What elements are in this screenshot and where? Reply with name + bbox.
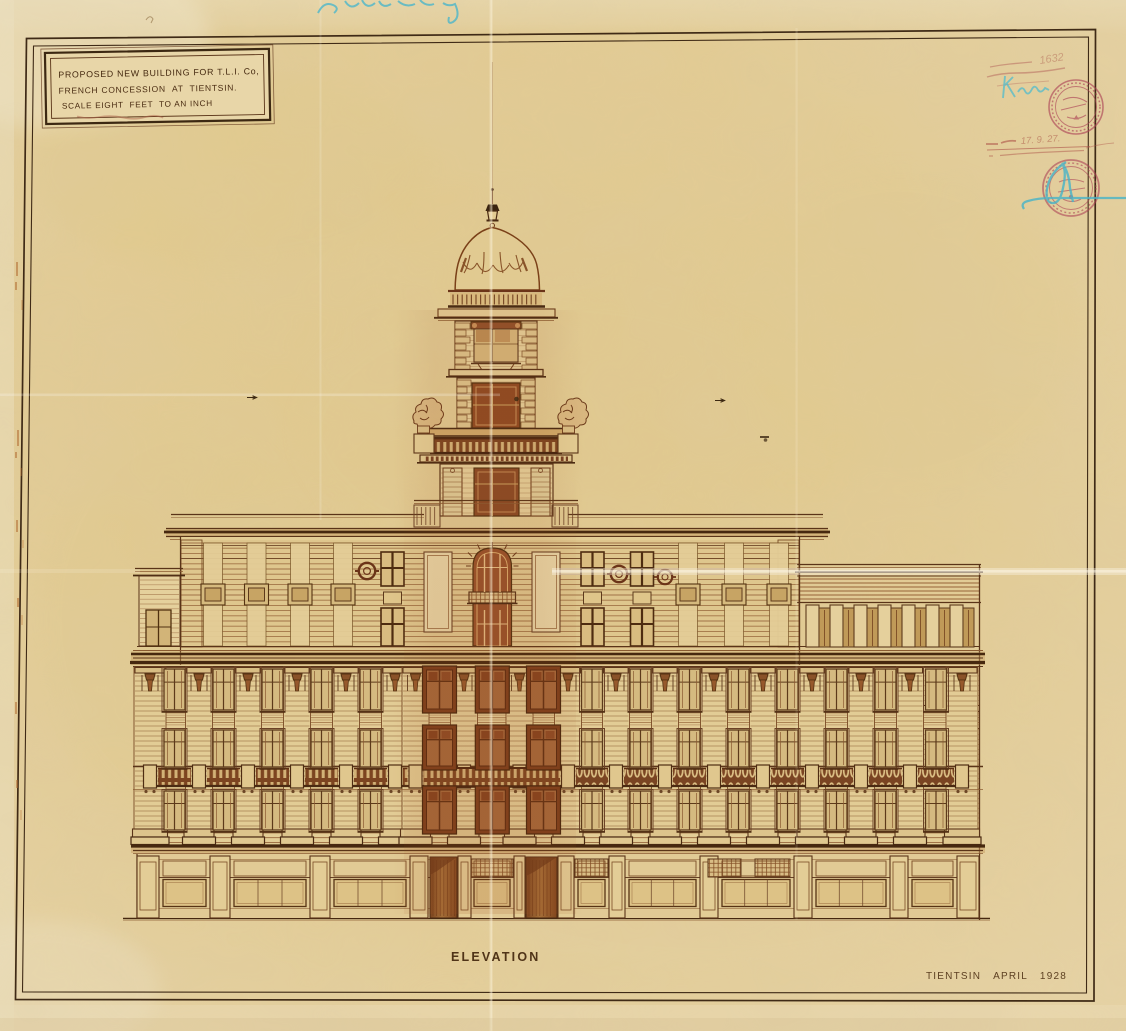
- svg-text:TIENTSIN APRIL 1928: TIENTSIN APRIL 1928: [926, 971, 1067, 982]
- svg-text:ELEVATION: ELEVATION: [451, 950, 540, 964]
